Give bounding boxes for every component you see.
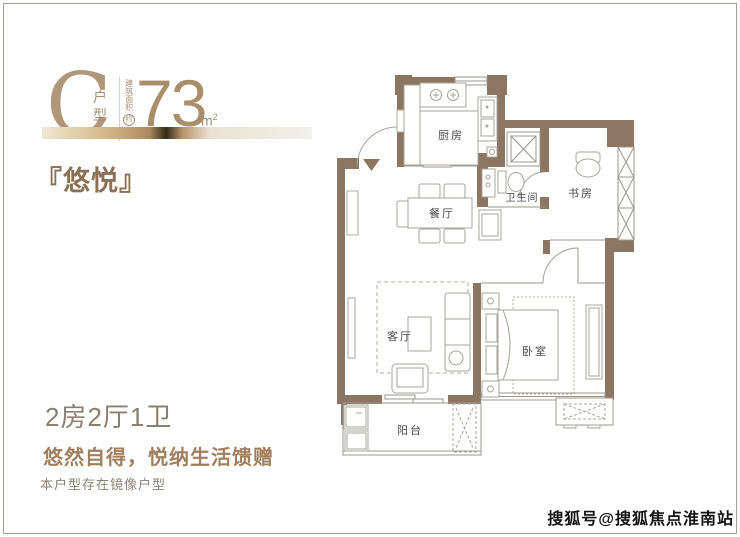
- bed: [486, 310, 558, 380]
- room-label-living: 客厅: [387, 329, 413, 343]
- slogan: 悠然自得，悦纳生活馈赠: [43, 441, 274, 470]
- balcony-cabinet: [345, 431, 368, 451]
- armchair: [392, 364, 428, 393]
- water-heater-spot: [453, 404, 476, 452]
- shaft-box: [507, 132, 540, 166]
- balcony-sink: [344, 405, 368, 429]
- study-bay-window: [618, 147, 634, 240]
- area-label-vertical: 建筑面积 约: [123, 79, 135, 126]
- washing-machine: [479, 210, 501, 240]
- wardrobe: [586, 305, 602, 379]
- entry-cabinet: [347, 191, 358, 235]
- room-label-kitchen: 厨房: [438, 129, 464, 142]
- study-chair: [576, 152, 600, 177]
- kitchen-counter: [404, 85, 420, 165]
- toilet: [498, 171, 524, 193]
- room-label-dining: 餐厅: [429, 206, 455, 220]
- gold-gradient-bar: [42, 127, 312, 139]
- watermark: 搜狐号@搜狐焦点淮南站: [547, 505, 734, 529]
- room-label-study: 书房: [568, 187, 594, 200]
- balcony-slider-leaf1: [385, 395, 415, 399]
- nightstand-top: [482, 293, 499, 309]
- unit-suffix-char2: 型: [93, 108, 107, 123]
- unit-suffix-char1: 户: [93, 90, 107, 105]
- tv-unit: [348, 298, 355, 358]
- kitchen-sink: [478, 97, 497, 141]
- mirror-note: 本户型存在镜像户型: [40, 474, 166, 493]
- stove: [420, 83, 466, 107]
- floor-drain: [487, 147, 497, 157]
- unit-type-suffix: 户 型: [93, 90, 107, 124]
- area-circled-char: 约: [123, 114, 135, 126]
- nightstand-bottom: [482, 381, 499, 397]
- project-name: 『悠悦』: [35, 159, 147, 198]
- room-label-bath: 卫生间: [506, 191, 539, 204]
- sofa: [445, 293, 470, 371]
- bath-sink: [482, 169, 495, 197]
- balcony-slider-leaf2: [413, 399, 443, 403]
- room-label-balcony: 阳台: [397, 423, 423, 437]
- ac-platform: [556, 398, 613, 428]
- kitchen-wall-cabinet: [397, 110, 404, 132]
- room-label-bedroom: 卧室: [522, 344, 548, 358]
- area-prefix-text: 建筑面积: [124, 79, 133, 111]
- layout-summary: 2房2厅1卫: [45, 397, 172, 434]
- floor-plan: 厨房 餐厅 卫生间 书房 客厅 卧室 阳台: [335, 55, 640, 465]
